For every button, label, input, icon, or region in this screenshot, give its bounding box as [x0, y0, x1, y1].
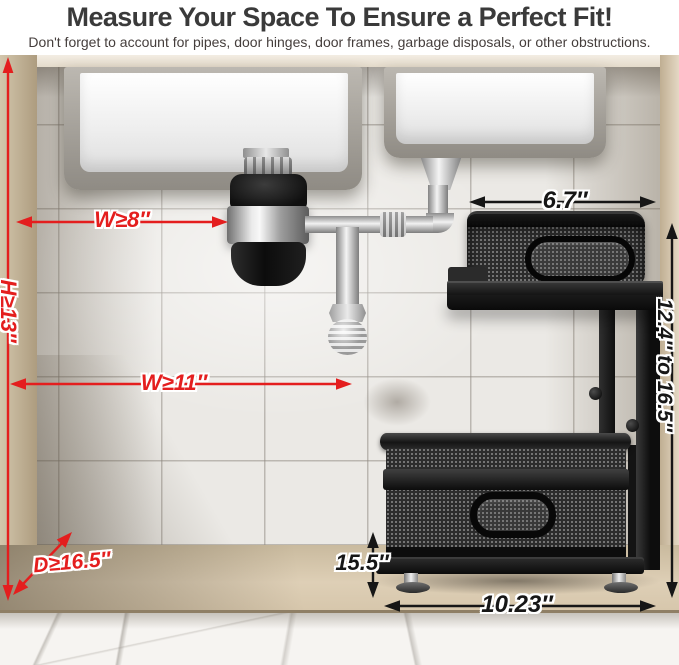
threaded-drain-fitting	[328, 319, 367, 355]
left-sink-interior	[80, 73, 348, 172]
pipe-shadow	[362, 377, 432, 427]
slide-out-base	[376, 557, 644, 574]
top-basket-rim	[467, 214, 645, 227]
right-sink-basin	[384, 67, 606, 158]
marble-floor-shadow	[0, 613, 679, 629]
adjustable-foot-right	[604, 573, 638, 595]
height-adjust-knob	[626, 419, 639, 432]
tailpiece-pipe	[336, 227, 359, 307]
product-infographic: Measure Your Space To Ensure a Perfect F…	[0, 0, 679, 665]
garbage-disposal-chrome-band	[227, 206, 309, 244]
under-sink-illustration: H≥13″ W≥8″ W≥11″ D≥16.5″ 6.7″ 12.4″ to 1…	[0, 55, 679, 665]
height-adjust-knob	[589, 387, 602, 400]
top-basket-handle	[525, 236, 635, 282]
adjustable-foot-left	[396, 573, 430, 595]
garbage-disposal-top	[230, 174, 307, 209]
foot-disc	[604, 582, 638, 593]
bottom-basket-handle	[470, 492, 556, 538]
top-basket-width-label: 6.7″	[543, 187, 588, 215]
horizontal-drain-pipe	[305, 216, 433, 233]
bottom-basket-band	[383, 469, 629, 490]
pipe-coupling-nut	[380, 212, 406, 237]
min-width-disposal-label: W≥8″	[94, 207, 150, 233]
top-shelf-front-edge	[447, 295, 663, 310]
left-sink-basin	[64, 67, 362, 190]
right-sink-interior	[396, 73, 594, 144]
adjustable-height-label: 12.4″ to 16.5″	[652, 298, 676, 431]
bottom-basket	[386, 448, 626, 560]
header: Measure Your Space To Ensure a Perfect F…	[0, 0, 679, 55]
garbage-disposal-bottom	[231, 242, 306, 286]
bottom-basket-width-label: 10.23″	[481, 591, 553, 619]
top-basket	[467, 211, 645, 286]
min-height-label: H≥13″	[0, 280, 21, 343]
foot-disc	[396, 582, 430, 593]
min-width-label: W≥11″	[141, 370, 207, 396]
page-subtitle: Don't forget to account for pipes, door …	[0, 34, 679, 50]
bottom-tier-height-label: 15.5″	[335, 550, 388, 576]
page-title: Measure Your Space To Ensure a Perfect F…	[0, 2, 679, 33]
